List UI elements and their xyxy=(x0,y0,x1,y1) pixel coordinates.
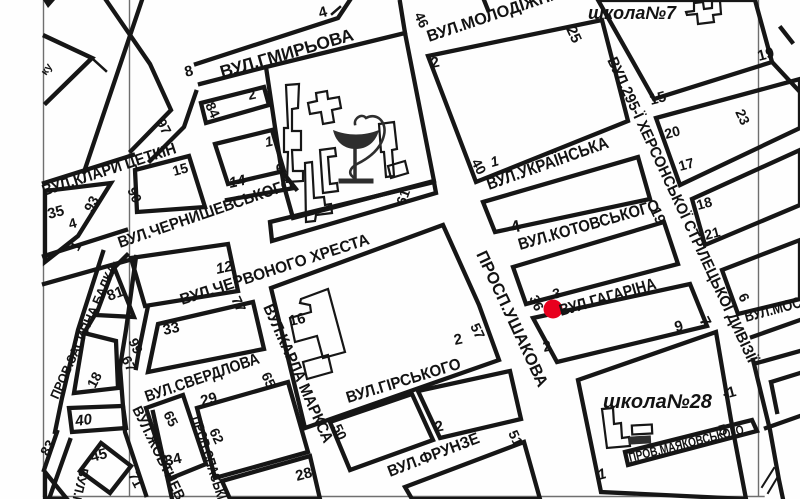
svg-text:33: 33 xyxy=(161,319,181,339)
svg-text:школа№7: школа№7 xyxy=(588,3,677,23)
svg-text:40: 40 xyxy=(73,411,94,430)
svg-text:16: 16 xyxy=(287,310,307,330)
svg-text:школа№28: школа№28 xyxy=(603,391,713,413)
